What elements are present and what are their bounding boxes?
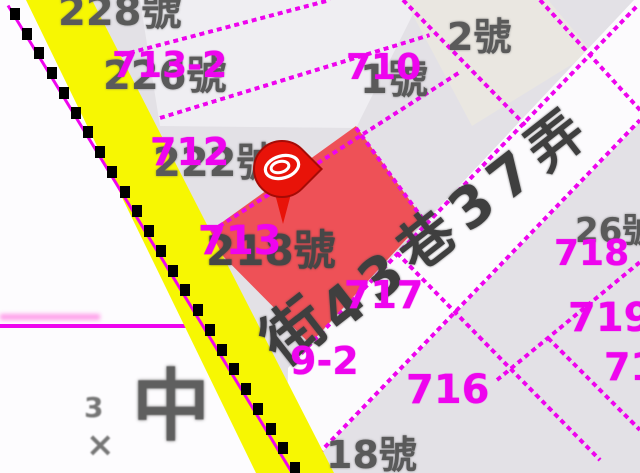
parcel-number-label: 712 xyxy=(150,133,229,171)
house-number-label: 228號 xyxy=(58,0,182,32)
road-dash xyxy=(47,67,57,79)
road-dash xyxy=(180,284,190,296)
house-number-label: 18號 xyxy=(326,436,417,473)
road-dash xyxy=(278,442,288,454)
road-dash xyxy=(34,47,44,59)
road-centerline xyxy=(0,324,190,328)
parcel-number-label: 716 xyxy=(406,370,490,410)
landmark-symbol: 3 xyxy=(84,394,103,422)
road-dash xyxy=(217,344,227,356)
parcel-number-label: 71 xyxy=(604,348,640,386)
parcel-number-label: 710 xyxy=(346,50,421,86)
parcel-number-label: 9-2 xyxy=(290,342,359,380)
road-dash xyxy=(120,186,130,198)
parcel-number-label: 719 xyxy=(568,298,640,338)
road-dash xyxy=(266,423,276,435)
road-dash xyxy=(229,363,239,375)
road-dash xyxy=(83,126,93,138)
map-canvas[interactable]: 228號713-2226號712222號713218號7101號2號717716… xyxy=(0,0,640,473)
pin-swirl-icon xyxy=(258,146,306,190)
road-dash xyxy=(241,383,251,395)
road-dash xyxy=(205,324,215,336)
road-dash xyxy=(290,462,300,473)
road-dash xyxy=(71,107,81,119)
road-dash xyxy=(107,166,117,178)
parcel-number-label: 713-2 xyxy=(112,48,227,84)
road-dash xyxy=(95,146,105,158)
road-dash xyxy=(10,8,20,20)
road-dash xyxy=(253,403,263,415)
location-pin-marker[interactable] xyxy=(250,140,316,235)
road-dash xyxy=(193,304,203,316)
road-dash xyxy=(59,87,69,99)
landmark-symbol: × xyxy=(86,428,115,462)
parcel-number-label: 718 xyxy=(554,236,629,272)
faded-line xyxy=(0,314,100,320)
parcel-number-label: 717 xyxy=(344,276,423,314)
landmark-label: 中 xyxy=(132,368,210,446)
road-dash xyxy=(168,265,178,277)
road-dash xyxy=(132,205,142,217)
road-dash xyxy=(22,28,32,40)
road-dash xyxy=(156,245,166,257)
road-dash xyxy=(144,225,154,237)
house-number-label: 2號 xyxy=(447,18,511,56)
